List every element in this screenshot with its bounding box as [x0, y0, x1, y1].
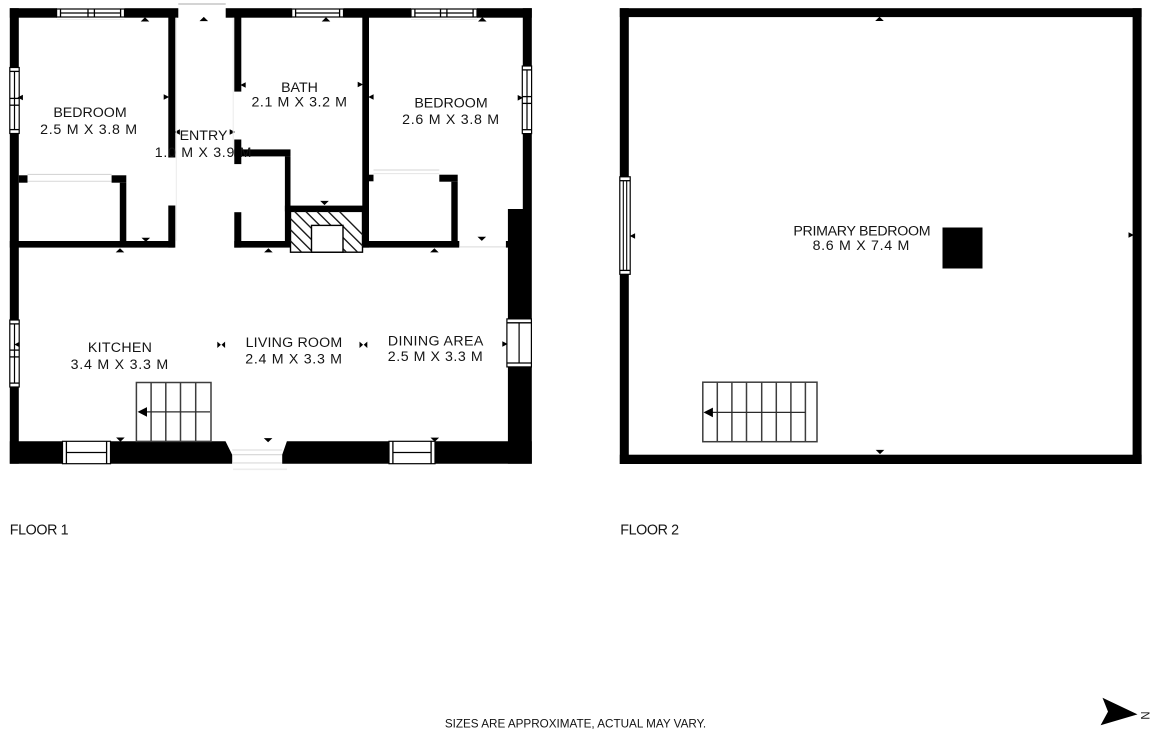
- svg-text:BATH: BATH: [281, 80, 318, 96]
- svg-text:FLOOR 1: FLOOR 1: [10, 523, 69, 539]
- svg-text:KITCHEN: KITCHEN: [88, 340, 152, 356]
- svg-text:2.5 M X 3.8 M: 2.5 M X 3.8 M: [40, 122, 138, 138]
- svg-text:FLOOR 2: FLOOR 2: [620, 523, 679, 539]
- svg-text:2.4 M X 3.3 M: 2.4 M X 3.3 M: [245, 351, 342, 367]
- svg-text:2.1 M X 3.2 M: 2.1 M X 3.2 M: [251, 95, 347, 111]
- svg-text:2.6 M X 3.8 M: 2.6 M X 3.8 M: [402, 112, 500, 128]
- svg-text:2.5 M X 3.3 M: 2.5 M X 3.3 M: [388, 349, 483, 365]
- svg-text:1.0 M X 3.9 M: 1.0 M X 3.9 M: [155, 145, 252, 161]
- svg-text:BEDROOM: BEDROOM: [53, 105, 126, 121]
- svg-text:N: N: [1138, 711, 1150, 719]
- svg-text:DINING AREA: DINING AREA: [388, 333, 484, 349]
- svg-text:8.6 M X 7.4 M: 8.6 M X 7.4 M: [813, 238, 910, 254]
- svg-text:BEDROOM: BEDROOM: [414, 96, 487, 112]
- svg-text:ENTRY: ENTRY: [180, 128, 228, 144]
- svg-text:SIZES ARE APPROXIMATE, ACTUAL: SIZES ARE APPROXIMATE, ACTUAL MAY VARY.: [445, 717, 706, 730]
- svg-text:LIVING ROOM: LIVING ROOM: [246, 335, 343, 351]
- svg-text:3.4 M X 3.3 M: 3.4 M X 3.3 M: [71, 357, 169, 373]
